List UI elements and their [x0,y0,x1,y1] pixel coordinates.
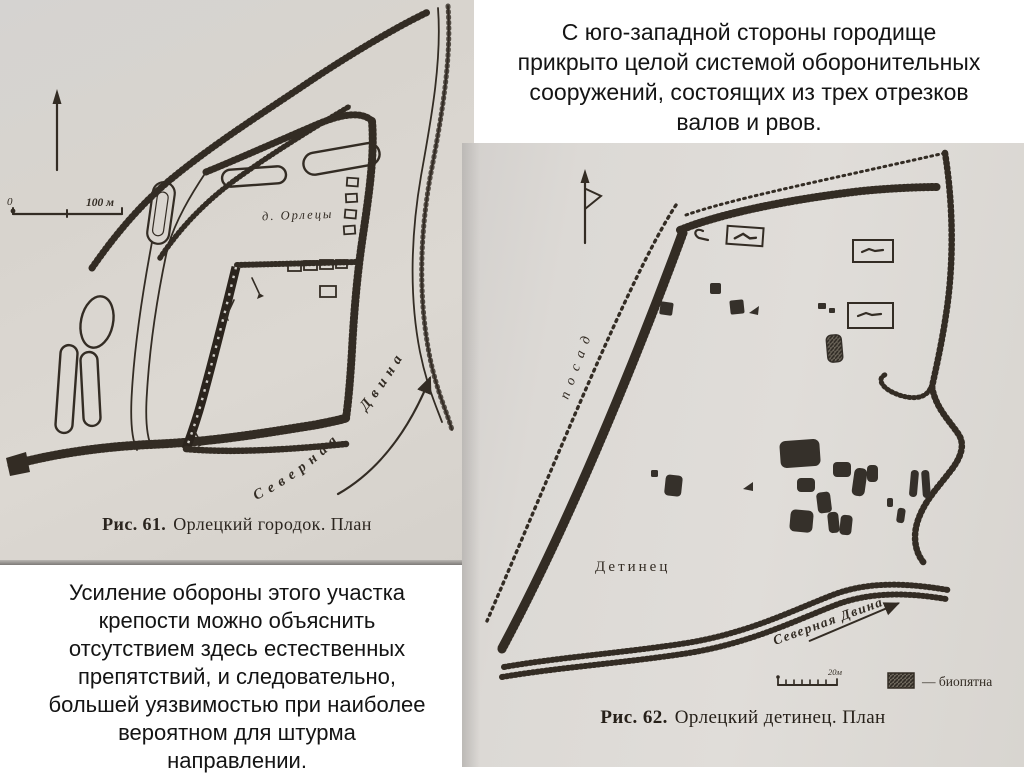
rampart [487,205,683,649]
scale-bar: 20м [776,667,842,685]
north-arrow-icon [53,89,62,170]
village-label: д. Орлецы [262,207,334,223]
legend: — биопятна [888,673,992,689]
paragraph-line: сооружений, состоящих из трех отрезков [474,77,1024,107]
building-outlines [695,226,893,328]
paragraph-line: С юго-западной стороны городище [474,17,1024,47]
posad-label: посад [558,327,597,402]
figure-number: Рис. 62. [600,707,667,728]
fig62-plan-drawing: посад Детинец Северная Двина 20м — биопя… [462,143,1024,767]
figure-62-caption: Рис. 62.Орлецкий детинец. План [462,707,1024,729]
bio-spots-cluster [651,283,931,536]
paragraph-line: вероятном для штурма [0,719,474,747]
paragraph-line: валов и рвов. [474,107,1024,137]
well-mark [695,230,708,240]
figure-61-caption: Рис. 61.Орлецкий городок. План [0,514,474,535]
paragraph-line: прикрыто целой системой оборонительных [474,47,1024,77]
figure-61-scan: 0 100 м [0,0,474,565]
paragraph-line: направлении. [0,747,474,775]
outer-rampart [92,12,428,268]
conclusion-paragraph: Усиление обороны этого участка крепости … [0,565,474,767]
river-channel [413,6,452,430]
paragraph-line: большей уязвимостью при наиболее [0,691,474,719]
legend-swatch [888,673,914,688]
scale-value-label: 100 м [86,197,114,209]
legend-label: — биопятна [921,674,992,689]
east-scarp-edge [881,153,962,563]
scale-zero-label: 0 [7,196,13,208]
figure-title: Орлецкий детинец. План [675,707,886,728]
enclosure-rampart [6,115,373,476]
north-arrow-icon [581,169,602,243]
figure-title: Орлецкий городок. План [173,514,372,534]
scale-bar: 0 100 м [7,196,122,217]
paragraph-line: отсутствием здесь естественных [0,635,474,663]
intro-paragraph: С юго-западной стороны городище прикрыто… [474,0,1024,143]
village-buildings [288,178,358,297]
detinets-label: Детинец [595,559,670,575]
figure-number: Рис. 61. [102,514,166,534]
paragraph-line: препятствий, и следовательно, [0,663,474,691]
pond-ovals [55,141,381,433]
paragraph-line: Усиление обороны этого участка [0,579,474,607]
figure-62-scan: посад Детинец Северная Двина 20м — биопя… [462,143,1024,767]
paragraph-line: крепости можно объяснить [0,607,474,635]
fig61-plan-drawing: 0 100 м [0,0,474,565]
slide: { "slide": { "background": "#ffffff", "t… [0,0,1024,767]
river-label: Северная Двина [771,594,885,648]
scale-value-label: 20м [828,667,843,677]
north-edge [680,153,945,230]
